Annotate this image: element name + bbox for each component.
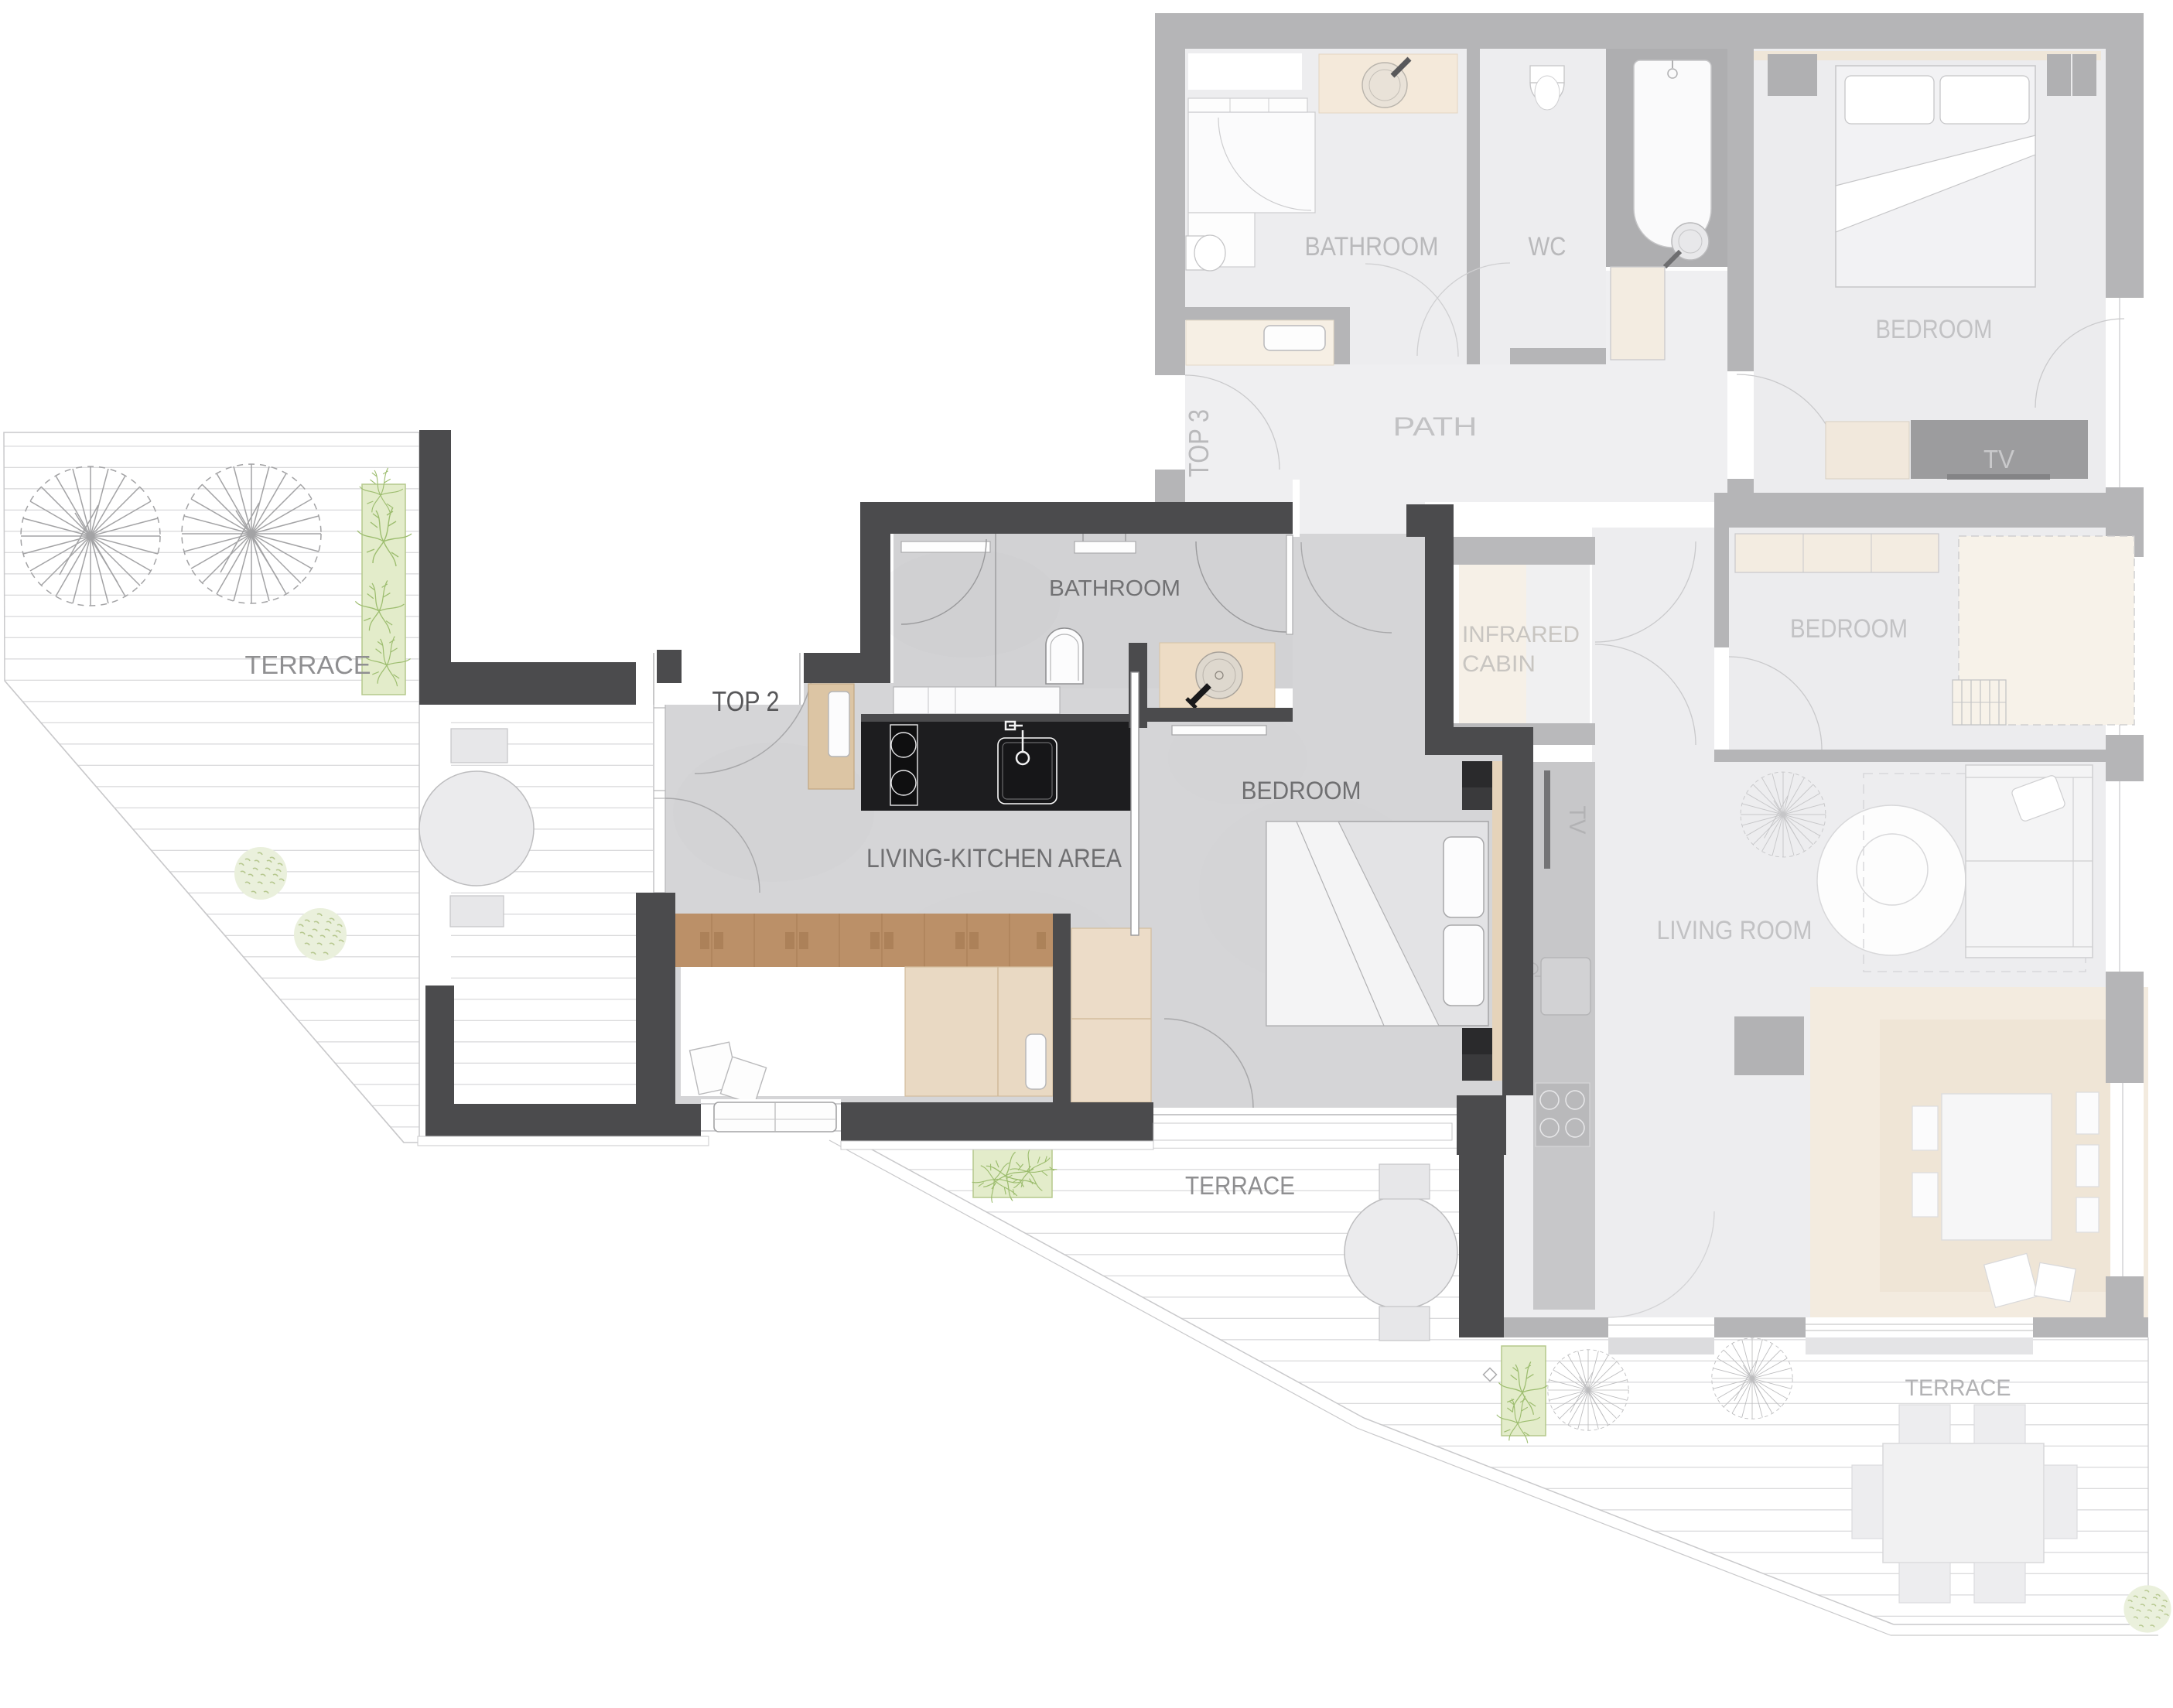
svg-text:TV: TV <box>1564 806 1590 835</box>
svg-text:BEDROOM: BEDROOM <box>1876 315 1993 344</box>
svg-text:TERRACE: TERRACE <box>245 651 371 679</box>
svg-text:BATHROOM: BATHROOM <box>1049 576 1180 601</box>
svg-text:CABIN: CABIN <box>1462 651 1536 677</box>
svg-text:TOP 2: TOP 2 <box>712 685 780 717</box>
svg-text:TV: TV <box>1983 445 2014 473</box>
svg-text:BEDROOM: BEDROOM <box>1790 614 1908 644</box>
svg-text:BATHROOM: BATHROOM <box>1305 232 1439 261</box>
svg-text:TOP 3: TOP 3 <box>1183 409 1215 477</box>
svg-text:PATH: PATH <box>1393 412 1478 442</box>
svg-text:TERRACE: TERRACE <box>1905 1375 2011 1401</box>
svg-text:LIVING ROOM: LIVING ROOM <box>1657 916 1813 945</box>
svg-text:BEDROOM: BEDROOM <box>1242 777 1362 804</box>
svg-text:INFRARED: INFRARED <box>1462 622 1580 647</box>
svg-text:TERRACE: TERRACE <box>1185 1171 1295 1200</box>
svg-text:WC: WC <box>1529 232 1567 261</box>
svg-text:LIVING-KITCHEN AREA: LIVING-KITCHEN AREA <box>866 844 1122 873</box>
